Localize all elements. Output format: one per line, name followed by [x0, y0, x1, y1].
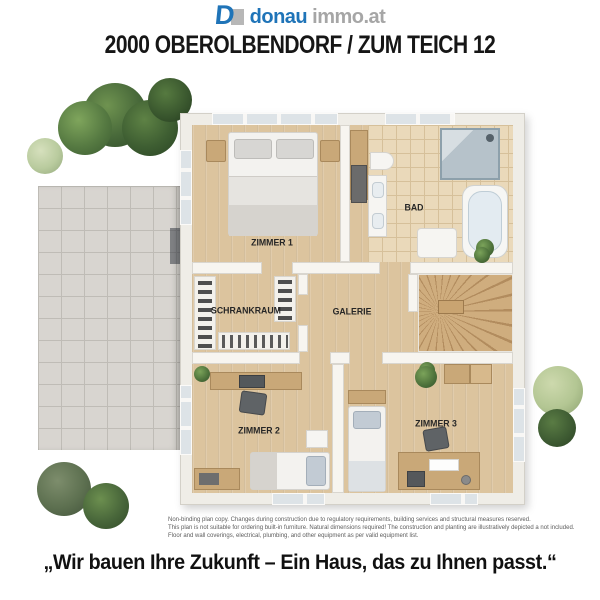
shower [440, 128, 500, 180]
desk-items [407, 471, 425, 487]
plant-icon [194, 366, 210, 382]
room-label-zimmer3: ZIMMER 3 [415, 419, 457, 430]
logo-d-glyph: D [213, 0, 236, 31]
wall-mid-a [192, 262, 262, 274]
showerhead-icon [486, 134, 494, 142]
wall-lower-c [382, 352, 513, 364]
shelf-items [199, 473, 219, 485]
wall-lower-b [330, 352, 350, 364]
shower-tray [417, 228, 457, 258]
tree-icon [58, 101, 112, 155]
blanket [229, 205, 317, 236]
wall-mid-c [410, 262, 513, 274]
hall-shelf-dark [351, 165, 367, 203]
nightstand [306, 430, 328, 448]
disclaimer-text: Non-binding plan copy. Changes during co… [168, 516, 574, 540]
tree-icon [538, 409, 576, 447]
disclaimer-line: Floor and wall coverings, electrical, pl… [168, 532, 574, 540]
pillow [353, 411, 381, 429]
page-title: 2000 OBEROLBENDORF / ZUM TEICH 12 [48, 31, 552, 60]
sink-counter [368, 175, 387, 237]
wardrobe [444, 364, 470, 384]
low-shelf [194, 468, 240, 490]
window-left-zimmer2 [180, 385, 192, 455]
pillow [234, 139, 272, 159]
hanging-clothes [222, 335, 288, 348]
listing-image: D donauimmo.at 2000 OBEROLBENDORF / ZUM … [0, 0, 600, 600]
single-bed [250, 452, 330, 490]
basin [372, 213, 384, 229]
plant-icon [415, 366, 437, 388]
blanket [349, 461, 385, 491]
paper-sheet [429, 459, 459, 471]
wall-zimmer2-zimmer3 [332, 364, 344, 493]
desk-chair [422, 426, 449, 452]
brand-logo: D donauimmo.at [0, 5, 600, 29]
winder-staircase [418, 274, 513, 352]
room-label-galerie: GALERIE [333, 307, 372, 318]
room-label-bad: BAD [405, 203, 424, 214]
desk-lamp-icon [461, 475, 471, 485]
wardrobe [470, 364, 492, 384]
single-bed [348, 406, 386, 492]
closet-rack-bottom [218, 332, 290, 350]
disclaimer-line: Non-binding plan copy. Changes during co… [168, 516, 574, 524]
bed-headboard [348, 390, 386, 404]
hanging-clothes [198, 280, 212, 348]
staircase-landing [438, 300, 464, 314]
terrace-tiles [38, 186, 180, 450]
desk-chair [239, 390, 268, 415]
pillow [306, 456, 326, 486]
tree-icon [27, 138, 63, 174]
wall-stair-left [408, 274, 418, 312]
basin [372, 182, 384, 198]
toilet [370, 152, 394, 170]
double-bed [228, 132, 318, 236]
blanket [251, 453, 277, 489]
wall-schrankraum-right-top [298, 274, 308, 295]
laptop-icon [239, 375, 265, 388]
brand-name-gray: immo.at [312, 5, 385, 29]
wall-lower-a [192, 352, 300, 364]
wall-zimmer1-right [340, 125, 350, 262]
brand-name-blue: donau [250, 5, 308, 29]
brand-logo-icon: D [215, 5, 245, 29]
tree-icon [83, 483, 129, 529]
window-top-zimmer1 [212, 113, 338, 125]
plant-icon [474, 247, 490, 263]
window-bottom-zimmer3 [430, 493, 478, 505]
window-left-zimmer1 [180, 150, 192, 225]
window-top-bad [385, 113, 455, 125]
window-right-zimmer3 [513, 388, 525, 462]
desk [398, 452, 480, 490]
disclaimer-line: This plan is not suitable for ordering b… [168, 524, 574, 532]
desk [210, 372, 302, 390]
wall-mid-b [292, 262, 380, 274]
room-label-zimmer1: ZIMMER 1 [251, 238, 293, 249]
wall-shadow [170, 228, 180, 264]
nightstand [320, 140, 340, 162]
wall-schrankraum-right-bottom [298, 325, 308, 352]
pillow [276, 139, 314, 159]
room-label-zimmer2: ZIMMER 2 [238, 426, 280, 437]
slogan-text: „Wir bauen Ihre Zukunft – Ein Haus, das … [18, 551, 582, 575]
window-bottom-zimmer2 [272, 493, 325, 505]
nightstand [206, 140, 226, 162]
room-label-schrankraum: SCHRANKRAUM [211, 306, 281, 317]
